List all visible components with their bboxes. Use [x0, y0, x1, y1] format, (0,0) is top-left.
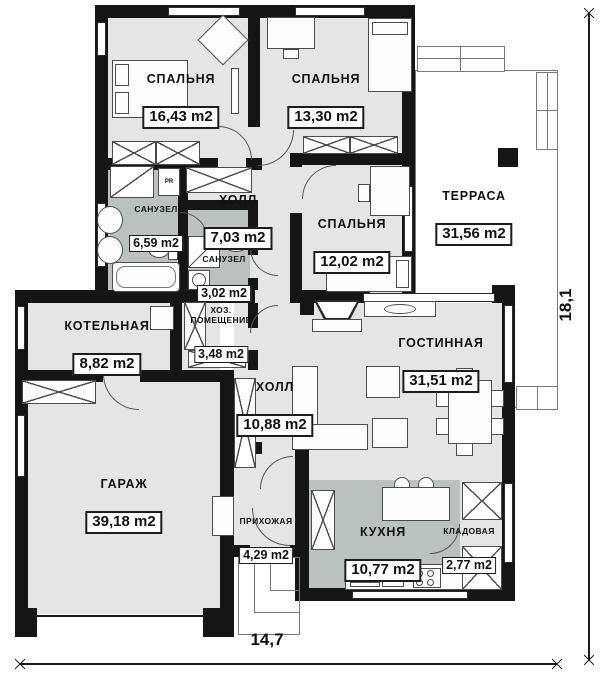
pillow [115, 64, 129, 86]
wall-bedroom3-left-b [290, 213, 302, 290]
wardrobe [22, 380, 96, 404]
room-area: 12,02 m2 [313, 251, 390, 274]
wall-garage-pier-left [15, 608, 37, 637]
bathtub [112, 262, 180, 292]
boiler [150, 306, 174, 330]
wall-bedroom2-bottom [297, 153, 415, 165]
room-name: ПРИХОЖАЯ [239, 517, 293, 527]
sink [97, 206, 123, 234]
chair [358, 184, 370, 202]
room-name: КЛАДОВАЯ [442, 527, 496, 537]
room-label-hall2: ХОЛЛ 10,88 m2 [236, 380, 313, 437]
room-area: 10,88 m2 [236, 414, 313, 437]
room-area: 7,03 m2 [203, 227, 272, 250]
window [97, 22, 106, 56]
terrace-step-top [417, 46, 505, 72]
room-area: 4,29 m2 [239, 547, 293, 565]
room-label-terrace: ТЕРРАСА 31,56 m2 [435, 189, 512, 246]
room-area: 31,51 m2 [402, 370, 479, 393]
window [504, 483, 513, 563]
window [17, 415, 25, 477]
garage-door-line [37, 615, 203, 617]
floor-plan: PR СПАЛЬНЯ 16, [0, 0, 600, 677]
room-area: 13,30 m2 [287, 106, 364, 129]
room-area: 6,59 m2 [129, 235, 183, 253]
room-name: ГОСТИННАЯ [398, 336, 483, 350]
wardrobe [186, 167, 252, 193]
dimension-height-label: 18,1 [556, 283, 576, 327]
dimension-line-bottom [20, 663, 558, 665]
pillow [115, 92, 129, 114]
sink [97, 236, 123, 264]
room-name: ТЕРРАСА [435, 189, 512, 203]
dining-chair [491, 390, 504, 407]
terrace-step-divider [547, 72, 548, 150]
wall-bedroom-divider [248, 5, 260, 127]
room-area: 3,48 m2 [194, 346, 248, 364]
room-name: СПАЛЬНЯ [313, 217, 390, 231]
room-area: 31,56 m2 [435, 223, 512, 246]
terrace-step-divider [537, 386, 538, 410]
terrace-column [498, 148, 518, 167]
room-label-entry: ПРИХОЖАЯ 4,29 m2 [239, 517, 293, 564]
wardrobe [156, 141, 200, 165]
room-label-boiler: КОТЕЛЬНАЯ 8,82 m2 [64, 319, 149, 376]
dimension-width-label: 14,7 [232, 630, 302, 650]
fireplace-base [300, 301, 314, 315]
room-name: ХОЛЛ [236, 380, 313, 394]
window [295, 7, 365, 16]
room-label-bedroom2: СПАЛЬНЯ 13,30 m2 [287, 72, 364, 129]
mirror [231, 68, 239, 114]
window [168, 7, 240, 16]
terrace-step-divider [417, 58, 505, 59]
fireplace-inner [316, 302, 358, 318]
room-area: 3,02 m2 [197, 285, 251, 303]
room-name: САНУЗЕЛ [197, 255, 251, 265]
room-name: ХОЛЛ [203, 193, 272, 207]
desk [370, 166, 410, 216]
wall-garage-right [220, 370, 234, 617]
fireplace-hearth [312, 319, 362, 332]
room-name: СПАЛЬНЯ [142, 72, 219, 86]
pillow [372, 22, 408, 35]
terrace-step-divider [460, 46, 461, 72]
room-label-bath1: САНУЗЕЛ 6,59 m2 [129, 205, 183, 252]
wardrobe [311, 490, 335, 550]
wardrobe [112, 141, 156, 165]
window [352, 591, 468, 599]
wardrobe [350, 136, 398, 154]
room-label-kitchen: КУХНЯ 10,77 m2 [344, 525, 421, 582]
dining-chair [491, 418, 504, 435]
room-label-bedroom3: СПАЛЬНЯ 12,02 m2 [313, 217, 390, 274]
window [17, 306, 25, 350]
pillow [396, 260, 409, 288]
room-area: 10,77 m2 [344, 559, 421, 582]
dining-chair [456, 443, 473, 456]
dimension-end-marker [584, 8, 594, 18]
entry-cabinet [212, 496, 234, 536]
room-label-bath2: САНУЗЕЛ 3,02 m2 [197, 255, 251, 302]
wall-bedroom3-left-a [290, 153, 302, 167]
room-label-utility: ХОЗ. ПОМЕЩЕНИЕ 3,48 m2 [190, 306, 251, 363]
room-name: САНУЗЕЛ [129, 205, 183, 215]
room-name: ГАРАЖ [85, 477, 162, 491]
bathtub-inner [116, 266, 176, 288]
wardrobe [303, 136, 350, 154]
dimension-end-marker [552, 659, 562, 669]
room-area: 8,82 m2 [72, 353, 141, 376]
room-name: КУХНЯ [344, 525, 421, 539]
room-label-pantry: КЛАДОВАЯ 2,77 m2 [442, 527, 496, 574]
coffee-table [366, 366, 400, 398]
shower [110, 166, 154, 198]
room-name: ХОЗ. ПОМЕЩЕНИЕ [190, 306, 251, 326]
room-label-living: ГОСТИННАЯ 31,51 m2 [398, 336, 483, 393]
room-area: 2,77 m2 [442, 557, 496, 575]
pr-label: PR [158, 179, 180, 185]
ottoman [372, 418, 408, 448]
room-label-hall1: ХОЛЛ 7,03 m2 [203, 193, 272, 250]
wall-garage-top-b [140, 370, 220, 382]
dimension-end-marker [15, 659, 25, 669]
window [504, 305, 513, 383]
tv [384, 304, 416, 314]
room-name: КОТЕЛЬНАЯ [64, 319, 149, 333]
burner [427, 579, 434, 586]
room-area: 16,43 m2 [142, 106, 219, 129]
desk [267, 17, 315, 49]
burner [427, 570, 434, 577]
kitchen-island [382, 487, 450, 521]
room-label-garage: ГАРАЖ 39,18 m2 [85, 477, 162, 534]
dimension-end-marker [584, 655, 594, 665]
room-label-bedroom1: СПАЛЬНЯ 16,43 m2 [142, 72, 219, 129]
shelving [462, 482, 502, 520]
room-area: 39,18 m2 [85, 511, 162, 534]
room-name: СПАЛЬНЯ [287, 72, 364, 86]
chair [283, 49, 299, 59]
dimension-line-right [588, 12, 590, 660]
